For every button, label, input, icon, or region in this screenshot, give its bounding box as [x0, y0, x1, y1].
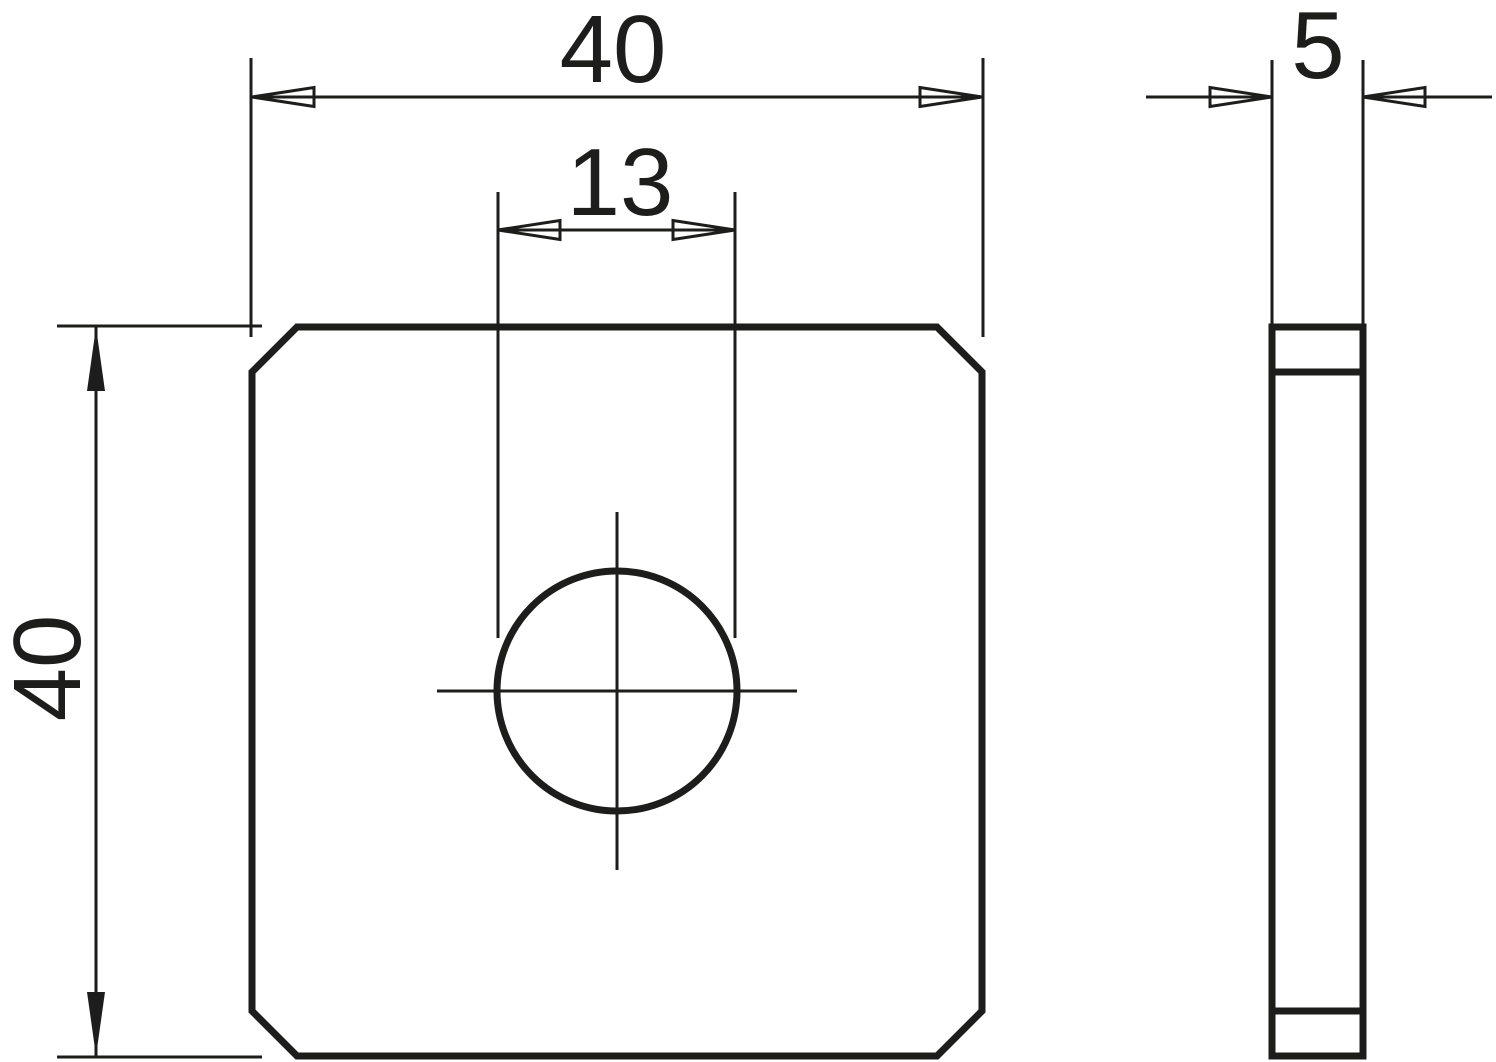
height-arrow-down-icon [87, 992, 105, 1056]
thickness-dimension-label: 5 [1291, 0, 1344, 99]
height-arrow-up-icon [87, 327, 105, 391]
front-view [252, 327, 982, 1056]
height-dimension: 40 [0, 326, 262, 1057]
width-dimension-label: 40 [560, 0, 667, 103]
thickness-dimension: 5 [1146, 0, 1492, 327]
height-dimension-label: 40 [0, 615, 101, 722]
dimension-drawing-canvas: 40 13 40 [0, 0, 1496, 1062]
side-view-outline [1272, 327, 1363, 1056]
side-view [1272, 327, 1363, 1056]
technical-drawing-page: 40 13 40 [0, 0, 1496, 1062]
hole-dimension-label: 13 [567, 129, 674, 236]
